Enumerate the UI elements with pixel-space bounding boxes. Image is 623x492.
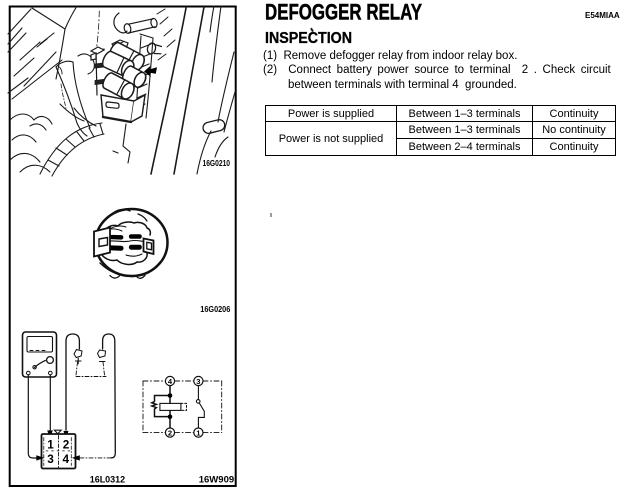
svg-text:4: 4 xyxy=(63,452,70,466)
svg-text:DEFOGGER RELAY: DEFOGGER RELAY xyxy=(265,0,422,25)
svg-text:1: 1 xyxy=(47,438,54,452)
svg-text:16G0206: 16G0206 xyxy=(200,305,230,314)
svg-text:16G0210: 16G0210 xyxy=(203,159,231,168)
svg-text:3: 3 xyxy=(47,452,54,466)
svg-text:16L0312: 16L0312 xyxy=(90,475,126,485)
svg-text:3: 3 xyxy=(196,377,200,386)
svg-text:INSPECTION: INSPECTION xyxy=(265,30,352,47)
svg-text:16W909: 16W909 xyxy=(199,475,235,486)
svg-text:2: 2 xyxy=(168,428,172,437)
svg-text:2: 2 xyxy=(63,438,70,452)
